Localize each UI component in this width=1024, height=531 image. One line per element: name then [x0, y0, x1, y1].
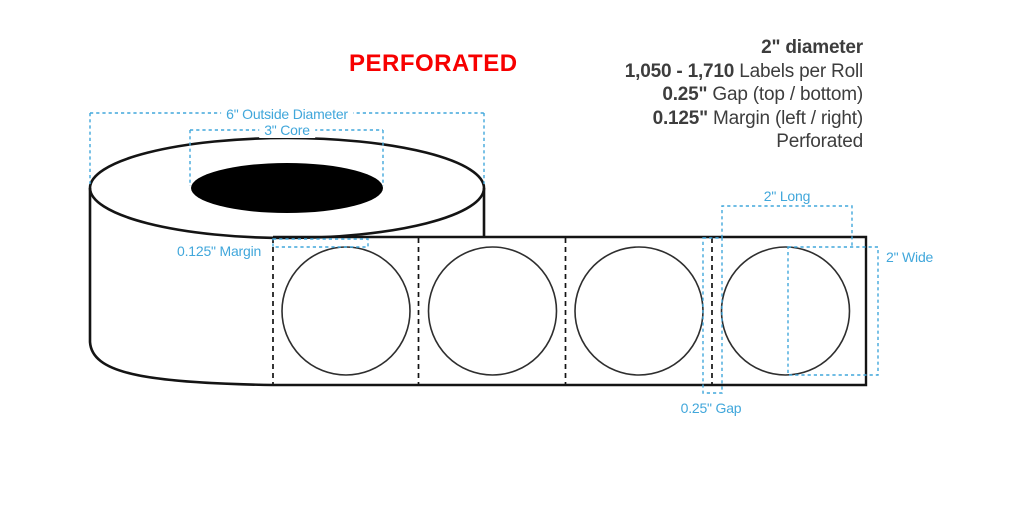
perforated-title: PERFORATED [349, 50, 518, 78]
margin-dim-label: 0.125" Margin [177, 243, 261, 259]
round-label [282, 247, 410, 375]
round-label [575, 247, 703, 375]
round-label [722, 247, 850, 375]
spec-line-gap: 0.25" Gap (top / bottom) [625, 83, 863, 107]
round-label [429, 247, 557, 375]
diagram-art [0, 0, 1024, 531]
spec-line-diameter: 2" diameter [625, 36, 863, 60]
core-dim-label: 3" Core [259, 122, 315, 138]
label-length-dim-label: 2" Long [764, 188, 810, 204]
label-length-dim-line [722, 206, 852, 247]
label-roll-spec-diagram: PERFORATED 2" diameter 1,050 - 1,710 Lab… [0, 0, 1024, 531]
spec-line-perforated: Perforated [625, 130, 863, 154]
roll [90, 138, 484, 385]
gap-dim-label: 0.25" Gap [681, 400, 742, 416]
margin-dim-box [273, 239, 368, 247]
label-strip [273, 237, 866, 385]
gap-dim-box [703, 238, 722, 393]
spec-block: 2" diameter 1,050 - 1,710 Labels per Rol… [625, 36, 863, 154]
label-width-dim-label: 2" Wide [886, 249, 933, 265]
spec-line-labels-per-roll: 1,050 - 1,710 Labels per Roll [625, 60, 863, 84]
roll-body-outline [90, 188, 273, 385]
spec-line-margin: 0.125" Margin (left / right) [625, 107, 863, 131]
roll-core-hole [191, 163, 383, 213]
outside-diameter-dim-label: 6" Outside Diameter [221, 106, 353, 122]
